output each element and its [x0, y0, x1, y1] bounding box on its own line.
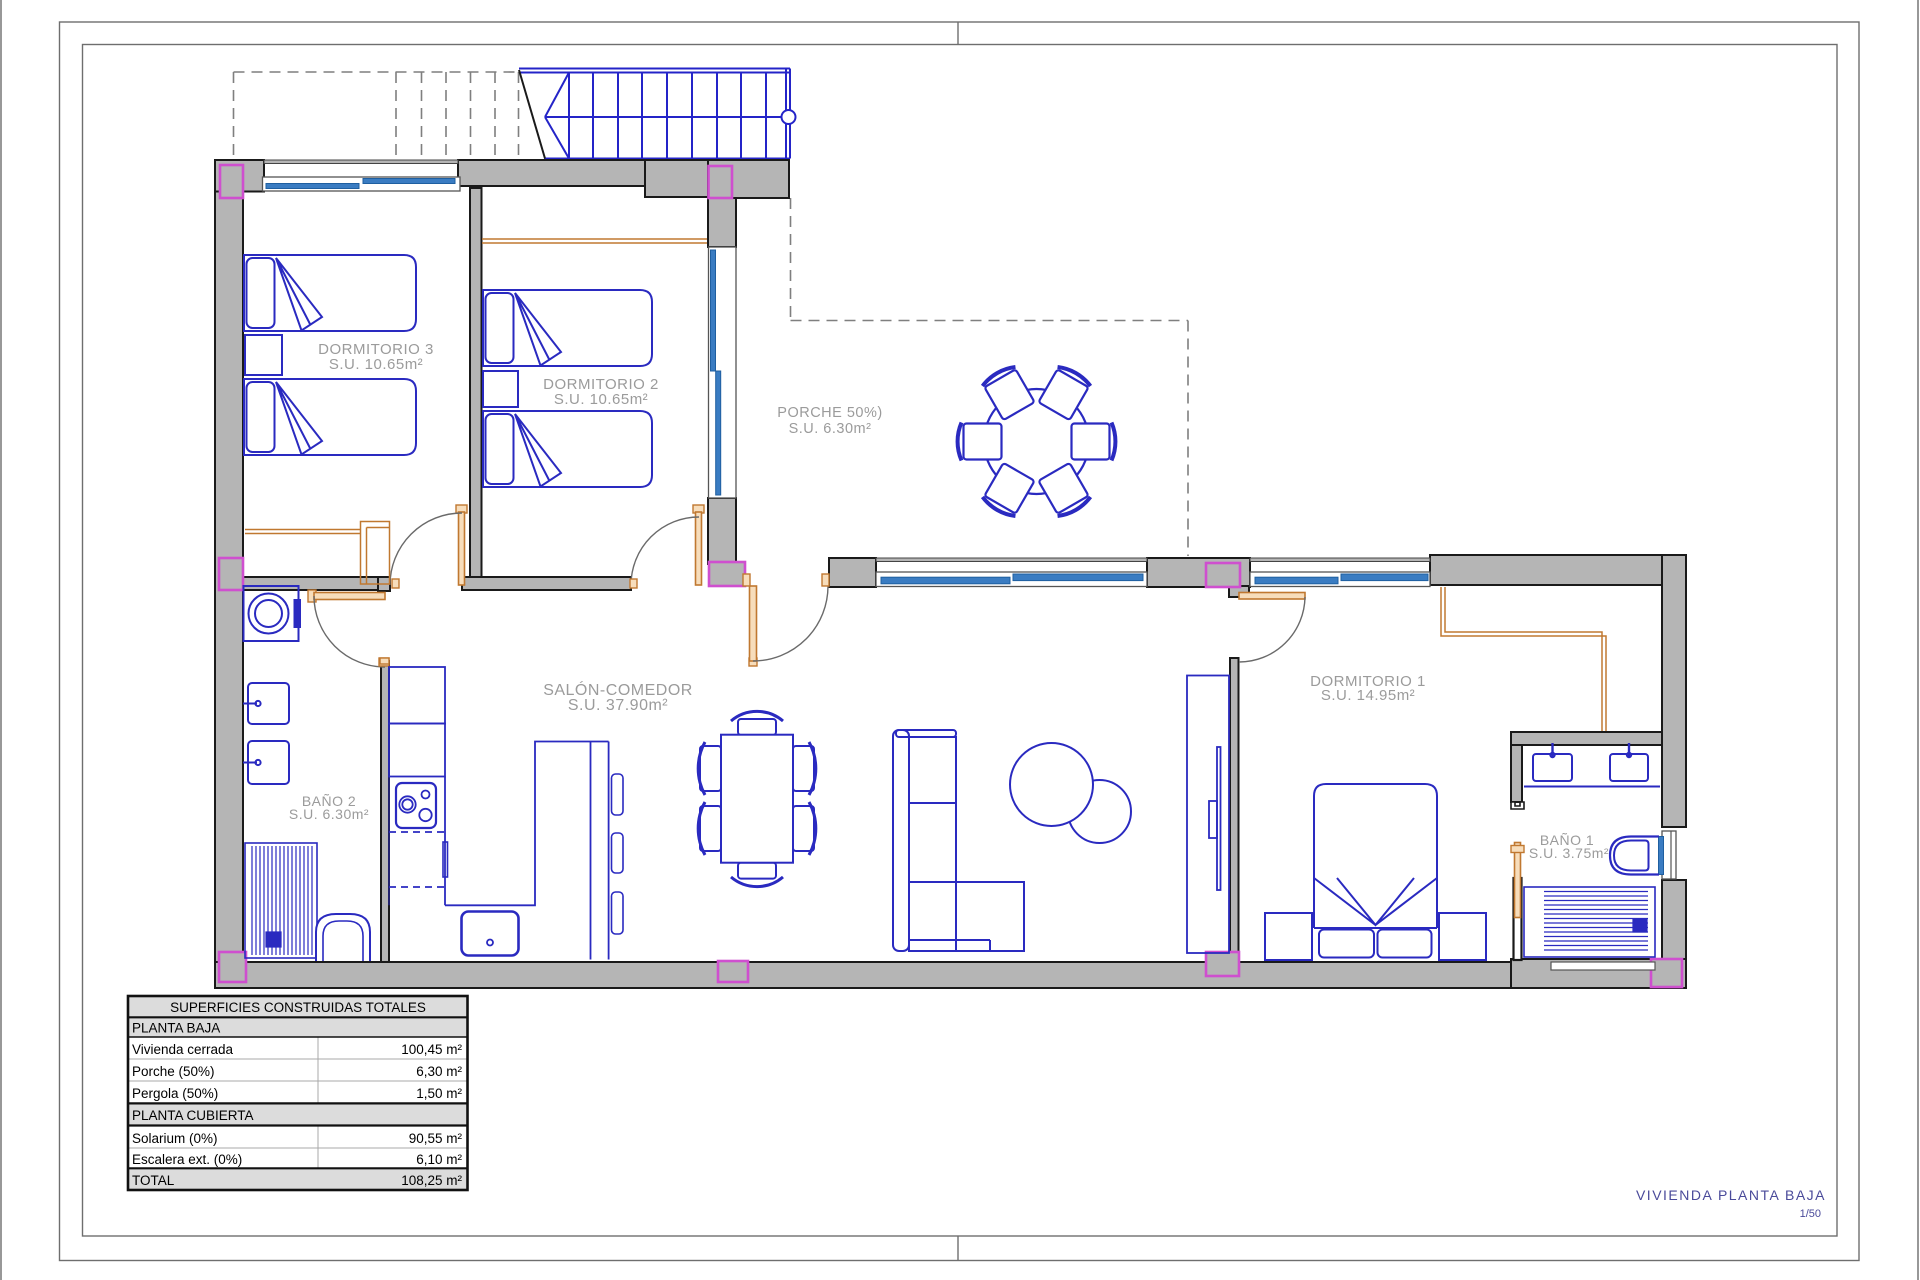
- svg-text:TOTAL: TOTAL: [132, 1173, 175, 1188]
- svg-text:S.U. 37.90m²: S.U. 37.90m²: [568, 697, 668, 714]
- svg-text:90,55 m²: 90,55 m²: [409, 1131, 463, 1146]
- svg-text:S.U. 14.95m²: S.U. 14.95m²: [1321, 687, 1415, 704]
- svg-text:Pergola (50%): Pergola (50%): [132, 1086, 218, 1101]
- svg-text:6,30 m²: 6,30 m²: [416, 1064, 462, 1079]
- svg-text:PORCHE 50%): PORCHE 50%): [777, 405, 882, 421]
- svg-text:S.U. 10.65m²: S.U. 10.65m²: [329, 356, 423, 373]
- svg-text:Solarium (0%): Solarium (0%): [132, 1131, 218, 1146]
- svg-text:SUPERFICIES CONSTRUIDAS TOTALE: SUPERFICIES CONSTRUIDAS TOTALES: [170, 1000, 426, 1015]
- svg-text:S.U. 10.65m²: S.U. 10.65m²: [554, 391, 648, 408]
- svg-text:Vivienda cerrada: Vivienda cerrada: [132, 1042, 234, 1057]
- svg-text:S.U. 6.30m²: S.U. 6.30m²: [789, 421, 872, 437]
- svg-text:VIVIENDA PLANTA BAJA: VIVIENDA PLANTA BAJA: [1636, 1187, 1826, 1203]
- svg-text:6,10 m²: 6,10 m²: [416, 1152, 462, 1167]
- svg-text:PLANTA BAJA: PLANTA BAJA: [132, 1021, 220, 1036]
- svg-text:1/50: 1/50: [1800, 1208, 1821, 1220]
- svg-text:PLANTA CUBIERTA: PLANTA CUBIERTA: [132, 1108, 254, 1123]
- svg-text:Escalera ext. (0%): Escalera ext. (0%): [132, 1152, 242, 1167]
- svg-text:100,45 m²: 100,45 m²: [401, 1042, 462, 1057]
- svg-text:S.U. 6.30m²: S.U. 6.30m²: [289, 806, 369, 822]
- svg-text:108,25 m²: 108,25 m²: [401, 1173, 462, 1188]
- svg-text:S.U. 3.75m²: S.U. 3.75m²: [1529, 845, 1609, 861]
- svg-text:1,50 m²: 1,50 m²: [416, 1086, 462, 1101]
- svg-text:Porche (50%): Porche (50%): [132, 1064, 215, 1079]
